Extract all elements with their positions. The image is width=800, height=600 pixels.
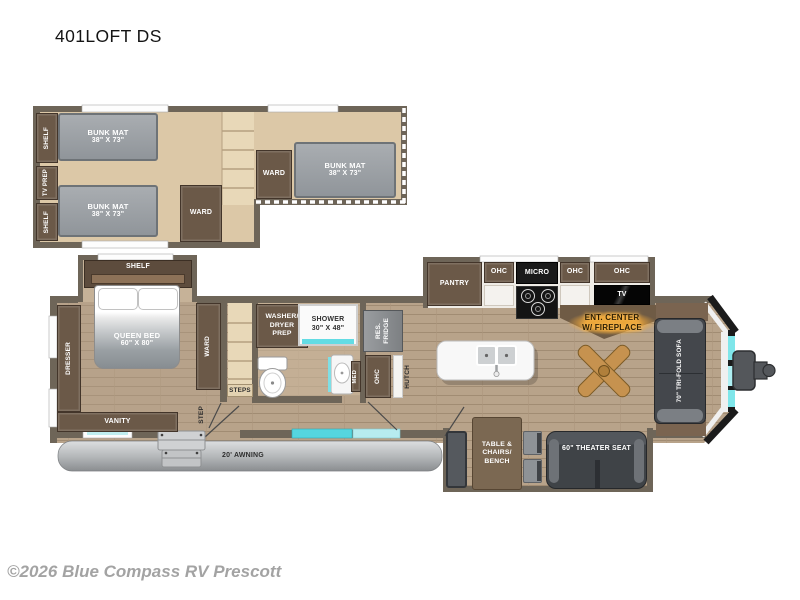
shower-name: SHOWER — [312, 316, 345, 325]
theater-label-row: 60" THEATER SEAT — [547, 442, 646, 456]
dinette-table: TABLE & CHAIRS/ BENCH — [472, 417, 522, 490]
loft-shelf-bottom-label: SHELF — [43, 211, 51, 233]
loft-bunk-1: BUNK MAT 38" X 73" — [58, 113, 158, 161]
toilet — [258, 357, 287, 398]
burner-2 — [541, 289, 555, 303]
main-steps-label: STEPS — [229, 387, 251, 395]
floorplan-page: 401LOFT DS — [0, 0, 800, 600]
dresser-label: DRESSER — [65, 342, 73, 375]
tv: TV — [594, 285, 650, 305]
copyright-watermark: ©2026 Blue Compass RV Prescott — [7, 562, 281, 582]
chair-2-back — [537, 461, 541, 481]
pillow-left — [98, 288, 138, 310]
range-cooktop — [516, 286, 558, 319]
ent-center-fireplace: ENT. CENTER W/ FIREPLACE — [556, 308, 668, 338]
theater-seat-label: 60" THEATER SEAT — [562, 445, 631, 454]
bunk2-name: BUNK MAT — [87, 202, 128, 211]
loft-tv-prep: TV PREP — [36, 166, 58, 200]
ohc-1: OHC — [484, 262, 514, 283]
main-stairs — [228, 303, 252, 385]
hutch-label: HUTCH — [404, 365, 412, 389]
theater-seat: 60" THEATER SEAT — [546, 431, 647, 489]
bath-ohc-label: OHC — [374, 369, 382, 384]
chair-1-back — [537, 433, 541, 453]
fridge-line1: RES. — [375, 323, 383, 339]
shower: SHOWER 30" X 48" — [298, 304, 358, 346]
pantry-label: PANTRY — [440, 280, 469, 289]
ohc-3: OHC — [594, 262, 650, 283]
bedroom-step: STEP — [195, 399, 209, 431]
bath-sink — [328, 355, 353, 394]
ohc-3-label: OHC — [614, 268, 630, 277]
table-line1: TABLE & — [482, 441, 512, 449]
bedroom-shelf-label: SHELF — [85, 263, 191, 272]
awning-label-box: 20' AWNING — [183, 451, 303, 462]
fridge-line2: FRIDGE — [383, 318, 391, 344]
chair-1 — [523, 431, 542, 455]
kitchen-island — [437, 341, 538, 385]
microwave: MICRO — [516, 262, 558, 284]
bedroom-shelf-panel — [91, 274, 185, 284]
washer-line1: WASHER/ — [265, 313, 298, 321]
loft-shelf-top: SHELF — [36, 113, 58, 163]
queen-bed: QUEEN BED 60" X 80" — [94, 285, 180, 369]
queen-bed-size: 60" X 80" — [121, 340, 154, 349]
res-fridge: RES. FRIDGE — [363, 310, 403, 352]
hutch: HUTCH — [402, 356, 415, 398]
loft-bunk-2: BUNK MAT 38" X 73" — [58, 185, 158, 237]
theater-console — [595, 460, 600, 488]
ohc-2-label: OHC — [567, 268, 583, 277]
vanity-label: VANITY — [104, 418, 130, 427]
bunk2-size: 38" X 73" — [92, 211, 125, 220]
awning-label: 20' AWNING — [222, 452, 264, 461]
bench — [446, 431, 467, 488]
counter-1 — [484, 285, 514, 306]
shower-size: 30" X 48" — [312, 325, 345, 334]
loft-shelf-bottom: SHELF — [36, 203, 58, 241]
med-cabinet: MED — [351, 361, 361, 392]
table-line2: CHAIRS/ — [482, 449, 511, 457]
hitch — [733, 351, 775, 390]
queen-bed-labels: QUEEN BED 60" X 80" — [95, 328, 179, 352]
loft-ward-left: WARD — [180, 185, 222, 242]
microwave-label: MICRO — [525, 269, 549, 278]
bunk1-name: BUNK MAT — [87, 128, 128, 137]
ohc-1-label: OHC — [491, 268, 507, 277]
loft-shelf-top-label: SHELF — [43, 127, 51, 149]
bath-ohc: OHC — [365, 355, 391, 398]
chair-2 — [523, 459, 542, 483]
washer-line2: DRYER — [270, 322, 295, 330]
bedroom-ward: WARD — [196, 303, 221, 390]
tv-label: TV — [617, 291, 626, 300]
counter-2 — [560, 285, 590, 306]
queen-bed-name: QUEEN BED — [114, 331, 160, 340]
loft-ward-left-label: WARD — [190, 209, 212, 218]
ent-center-line2: W/ FIREPLACE — [582, 323, 642, 333]
ent-center-line1: ENT. CENTER — [585, 313, 640, 323]
loft-tv-prep-label: TV PREP — [43, 169, 51, 196]
vanity: VANITY — [57, 412, 178, 432]
shower-glass — [302, 339, 354, 344]
page-title: 401LOFT DS — [55, 26, 162, 47]
bunk3-size: 38" X 73" — [329, 170, 362, 179]
ohc-2: OHC — [560, 262, 590, 283]
loft-ward-right: WARD — [256, 150, 292, 199]
burner-1 — [521, 289, 535, 303]
loft-bunk-3: BUNK MAT 38" X 73" — [294, 142, 396, 198]
bedroom-shelf: SHELF — [84, 260, 192, 288]
table-line3: BENCH — [484, 458, 509, 466]
pillow-right — [138, 288, 178, 310]
sofa-armrest-bottom — [657, 409, 703, 422]
washer-line3: PREP — [272, 330, 291, 338]
bedroom-ward-label: WARD — [204, 336, 212, 357]
med-label: MED — [352, 370, 359, 383]
burner-3 — [531, 302, 545, 316]
bunk1-size: 38" X 73" — [92, 137, 125, 146]
bedroom-step-label: STEP — [198, 406, 206, 424]
bunk3-name: BUNK MAT — [324, 161, 365, 170]
main-steps-label-box: STEPS — [227, 384, 253, 397]
loft-ward-right-label: WARD — [263, 170, 285, 179]
dresser: DRESSER — [57, 305, 81, 412]
trifold-sofa-label: 70" TRI-FOLD SOFA — [676, 339, 684, 402]
pantry: PANTRY — [427, 262, 482, 306]
